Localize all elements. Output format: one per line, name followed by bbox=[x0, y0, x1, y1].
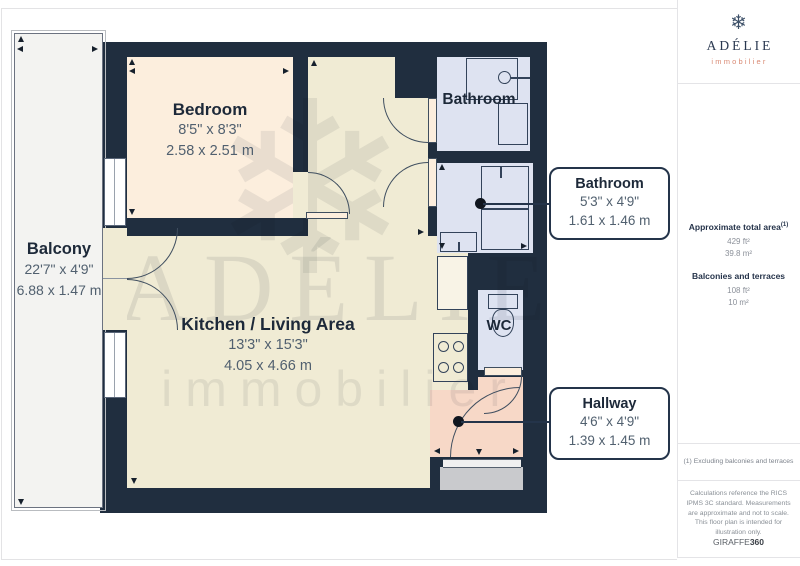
kitchen-counter bbox=[437, 256, 468, 310]
stove bbox=[433, 333, 468, 382]
hallway-callout-name: Hallway bbox=[551, 396, 668, 412]
bathroom-top-label: Bathroom bbox=[420, 91, 538, 109]
divider bbox=[677, 557, 800, 558]
stove-burner-2 bbox=[453, 341, 464, 352]
stove-burner-3 bbox=[438, 362, 449, 373]
wc-door-leaf bbox=[484, 367, 522, 376]
window-left-2-frame bbox=[114, 333, 115, 397]
bathroom-mid-door-leaf bbox=[428, 158, 437, 207]
divider bbox=[677, 83, 800, 84]
dimension-arrow-icon bbox=[283, 68, 289, 74]
disclaimer-text: Calculations reference the RICS IPMS 3C … bbox=[677, 489, 800, 538]
wall-duct bbox=[395, 42, 428, 98]
balcony-area-m: 10 m² bbox=[677, 297, 800, 309]
wc-name: WC bbox=[468, 317, 530, 334]
room-kitchen-lower bbox=[127, 390, 430, 488]
wc-label: WC bbox=[468, 317, 530, 334]
bathroom-callout-line bbox=[483, 203, 549, 205]
total-area-m: 39.8 m² bbox=[677, 248, 800, 260]
balcony-area-label: Balconies and terraces bbox=[677, 271, 800, 281]
agency-name: ADÉLIE bbox=[677, 38, 800, 54]
stove-burner-1 bbox=[438, 341, 449, 352]
hallway-callout-metric: 1.39 x 1.45 m bbox=[551, 431, 668, 450]
dimension-arrow-icon bbox=[513, 448, 519, 454]
kitchen-label: Kitchen / Living Area 13'3" x 15'3" 4.05… bbox=[118, 314, 418, 377]
dimension-arrow-icon bbox=[18, 36, 24, 42]
stove-burner-4 bbox=[453, 362, 464, 373]
window-left-1 bbox=[104, 158, 126, 226]
bathroom-mid-sink-tap bbox=[458, 242, 460, 252]
shower-drain bbox=[498, 71, 511, 84]
snowflake-icon: ❄ bbox=[677, 12, 800, 34]
window-left-1-frame bbox=[114, 159, 115, 225]
balcony-metric: 6.88 x 1.47 m bbox=[0, 280, 118, 301]
bathroom-callout-metric: 1.61 x 1.46 m bbox=[551, 211, 668, 230]
bedroom-imperial: 8'5" x 8'3" bbox=[127, 120, 293, 141]
hallway-callout-line bbox=[461, 421, 549, 423]
dimension-arrow-icon bbox=[92, 46, 98, 52]
entrance-threshold bbox=[443, 459, 521, 468]
footnote-marker: (1) bbox=[781, 222, 788, 228]
entrance-landing bbox=[440, 467, 523, 490]
agency-logo: ❄ ADÉLIE immobilier bbox=[677, 12, 800, 66]
bathroom-top-sink bbox=[498, 103, 528, 145]
balcony-name: Balcony bbox=[0, 240, 118, 259]
bedroom-metric: 2.58 x 2.51 m bbox=[127, 141, 293, 162]
dimension-arrow-icon bbox=[434, 448, 440, 454]
bathroom-callout-name: Bathroom bbox=[551, 176, 668, 192]
dimension-arrow-icon bbox=[129, 209, 135, 215]
kitchen-imperial: 13'3" x 15'3" bbox=[118, 335, 418, 356]
dimension-arrow-icon bbox=[129, 68, 135, 74]
divider bbox=[677, 480, 800, 481]
bathroom-top-name: Bathroom bbox=[420, 91, 538, 109]
footnote-text: (1) Excluding balconies and terraces bbox=[677, 443, 800, 480]
balcony-area-ft: 108 ft² bbox=[677, 285, 800, 297]
bedroom-label: Bedroom 8'5" x 8'3" 2.58 x 2.51 m bbox=[127, 100, 293, 162]
giraffe360-brand: GIRAFFE360 bbox=[677, 537, 800, 547]
bathroom-callout-imperial: 5'3" x 4'9" bbox=[551, 192, 668, 211]
floorplan-page: ❄ ADÉLIE immobilier bbox=[0, 0, 800, 566]
agency-subtitle: immobilier bbox=[677, 57, 800, 66]
bathroom-callout: Bathroom 5'3" x 4'9" 1.61 x 1.46 m bbox=[549, 167, 670, 240]
brand-regular: GIRAFFE bbox=[713, 537, 750, 547]
dimension-arrow-icon bbox=[311, 60, 317, 66]
balcony-imperial: 22'7" x 4'9" bbox=[0, 259, 118, 280]
dimension-arrow-icon bbox=[521, 243, 527, 249]
bathtub-divider bbox=[482, 208, 528, 210]
hallway-callout-imperial: 4'6" x 4'9" bbox=[551, 412, 668, 431]
dimension-arrow-icon bbox=[476, 449, 482, 455]
shower-arm-line bbox=[511, 77, 530, 79]
sidebar: ❄ ADÉLIE immobilier Approximate total ar… bbox=[677, 0, 800, 566]
area-summary: Approximate total area(1) 429 ft² 39.8 m… bbox=[677, 222, 800, 309]
bedroom-name: Bedroom bbox=[127, 100, 293, 120]
dimension-arrow-icon bbox=[17, 46, 23, 52]
total-area-ft: 429 ft² bbox=[677, 236, 800, 248]
dimension-arrow-icon bbox=[18, 499, 24, 505]
dimension-arrow-icon bbox=[418, 229, 424, 235]
kitchen-metric: 4.05 x 4.66 m bbox=[118, 356, 418, 377]
dimension-arrow-icon bbox=[439, 243, 445, 249]
total-area-label: Approximate total area(1) bbox=[677, 222, 800, 232]
balcony-label: Balcony 22'7" x 4'9" 6.88 x 1.47 m bbox=[0, 240, 118, 301]
toilet-tank bbox=[488, 294, 518, 309]
kitchen-name: Kitchen / Living Area bbox=[118, 314, 418, 335]
dimension-arrow-icon bbox=[129, 59, 135, 65]
dimension-arrow-icon bbox=[131, 478, 137, 484]
bathtub-tap-line bbox=[500, 166, 502, 178]
hallway-callout: Hallway 4'6" x 4'9" 1.39 x 1.45 m bbox=[549, 387, 670, 460]
dimension-arrow-icon bbox=[439, 164, 445, 170]
brand-bold: 360 bbox=[750, 537, 764, 547]
